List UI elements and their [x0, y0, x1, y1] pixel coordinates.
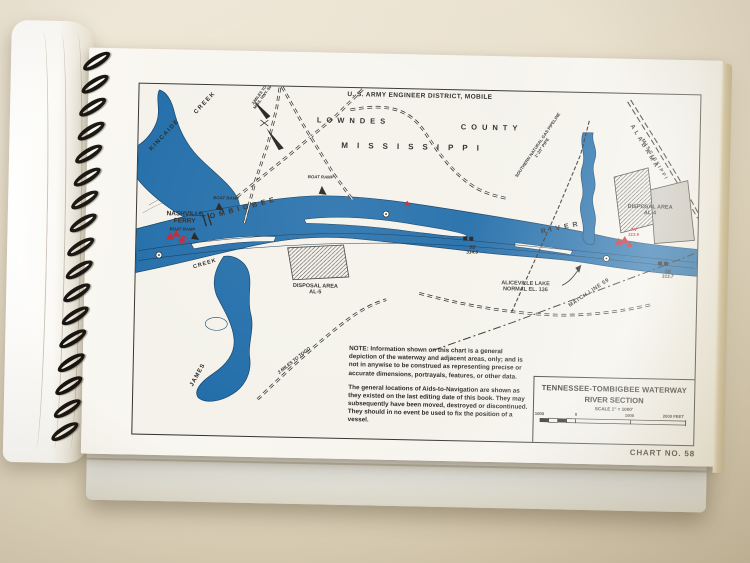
aid-tn2-mile: 313.9	[621, 233, 645, 238]
spiral-coil	[55, 349, 87, 375]
spiral-coil	[77, 95, 109, 121]
spiral-coil	[51, 396, 83, 422]
scale-tick-2000-feet: 2000 FEET	[663, 414, 684, 419]
label-county-lowndes: LOWNDES	[317, 116, 391, 126]
sleeve-edge	[713, 64, 733, 473]
label-boat-ramp-center: BOAT RAMP	[308, 175, 334, 180]
spiral-coil	[57, 326, 89, 352]
chart-notes: NOTE: Information shown on this chart is…	[348, 345, 532, 428]
waterway-title: TENNESSEE-TOMBIGBEE WATERWAY	[534, 383, 694, 395]
spiral-binding	[49, 55, 127, 458]
aid-label-tn-315-4: TN 315.4	[173, 235, 195, 245]
scale-tick-1000-right: 1000	[625, 413, 634, 418]
spiral-coil	[59, 303, 91, 329]
chart-frame: U. S. ARMY ENGINEER DISTRICT, MOBILE LOW…	[131, 83, 701, 447]
aid-label-sb-313-7: SB 313.7	[654, 268, 682, 279]
spiral-coil	[69, 187, 101, 213]
scale-tick-1000-left: 1000	[535, 411, 544, 416]
aid-label-sb-314-6: SB 314.6	[458, 244, 486, 255]
disposal-area-al5-hatch	[287, 244, 350, 281]
scale-tick-0: 0	[575, 412, 577, 417]
aid-tn1-mile: 315.4	[173, 240, 195, 245]
spiral-coil	[65, 234, 97, 260]
scale-bar: 1000 0 1000 2000 FEET	[539, 411, 689, 428]
label-boat-ramp-ferry: BOAT RAMP	[170, 227, 196, 232]
section-title: RIVER SECTION	[534, 394, 694, 406]
label-disposal-area-al4: DISPOSAL AREA AL-4	[617, 204, 683, 218]
spiral-coil	[71, 164, 103, 190]
spiral-coil	[53, 373, 85, 399]
spiral-coil	[61, 280, 93, 306]
title-block: TENNESSEE-TOMBIGBEE WATERWAY RIVER SECTI…	[532, 376, 694, 445]
note-paragraph-2: The general locations of Aids-to-Navigat…	[348, 384, 531, 429]
chart-number: CHART NO. 58	[630, 448, 695, 458]
photo-scene: U. S. ARMY ENGINEER DISTRICT, MOBILE LOW…	[0, 0, 750, 563]
spiral-coil	[75, 118, 107, 144]
note-paragraph-1: NOTE: Information shown on this chart is…	[348, 345, 531, 381]
aid-sb1-mile: 314.6	[458, 249, 486, 255]
chart-page: U. S. ARMY ENGINEER DISTRICT, MOBILE LOW…	[81, 48, 723, 467]
label-aliceville-lake: ALICEVILLE LAKE NORMAL EL. 136	[485, 280, 565, 294]
spiral-coil	[63, 257, 95, 283]
label-boat-ramp-west: BOAT RAMP	[213, 196, 239, 201]
disposal-area-al4-hatch	[613, 167, 656, 233]
spiral-coil	[49, 419, 81, 445]
spiral-coil	[67, 210, 99, 236]
label-disposal-area-al5: DISPOSAL AREA AL-5	[279, 283, 351, 297]
aid-label-tn-313-9: TN 313.9	[621, 228, 645, 238]
aid-sb2-mile: 313.7	[654, 274, 682, 280]
spiral-coil	[79, 72, 111, 98]
label-county-word: COUNTY	[461, 123, 523, 133]
spiral-coil	[73, 141, 105, 167]
spiral-book: U. S. ARMY ENGINEER DISTRICT, MOBILE LOW…	[0, 4, 746, 519]
